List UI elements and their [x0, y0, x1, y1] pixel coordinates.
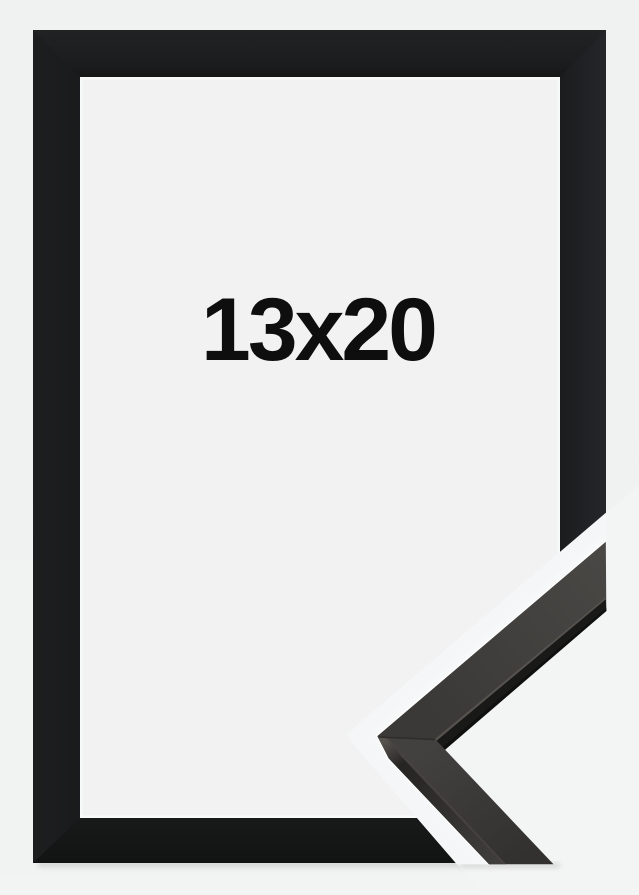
svg-text:13x20: 13x20 [201, 279, 435, 379]
